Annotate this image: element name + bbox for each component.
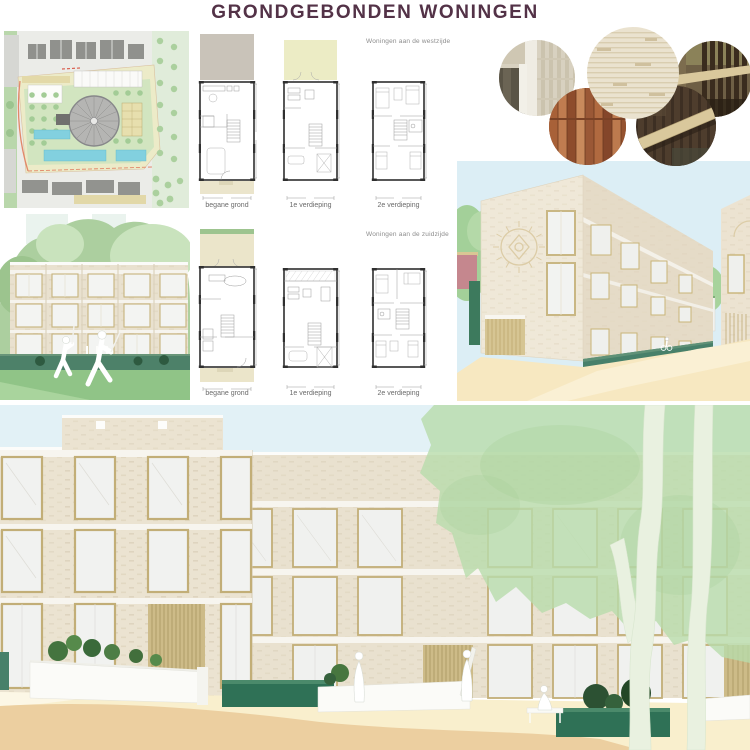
plan-west-begane-grond bbox=[197, 32, 257, 204]
floor-caption-west-2: 2e verdieping bbox=[370, 202, 427, 209]
floor-caption-zuid-0: begane grond bbox=[197, 390, 257, 397]
street-elevation-render bbox=[0, 405, 750, 750]
floor-caption-west-1: 1e verdieping bbox=[281, 202, 340, 209]
page-title: GRONDGEBONDEN WONINGEN bbox=[0, 2, 750, 24]
plan-zuid-2e-verdieping bbox=[370, 229, 427, 405]
plan-west-1e-verdieping bbox=[281, 32, 340, 204]
floor-caption-zuid-2: 2e verdieping bbox=[370, 390, 427, 397]
material-swatch-cream-brick bbox=[587, 27, 679, 119]
site-plan-figure bbox=[4, 31, 189, 208]
plan-west-2e-verdieping bbox=[370, 32, 427, 204]
street-perspective-render bbox=[457, 161, 750, 401]
west-elevation-render bbox=[0, 214, 190, 400]
presentation-board: GRONDGEBONDEN WONINGEN bbox=[0, 0, 750, 750]
floor-caption-zuid-1: 1e verdieping bbox=[281, 390, 340, 397]
plan-zuid-begane-grond bbox=[197, 229, 257, 405]
floor-caption-west-0: begane grond bbox=[197, 202, 257, 209]
plan-zuid-1e-verdieping bbox=[281, 229, 340, 405]
